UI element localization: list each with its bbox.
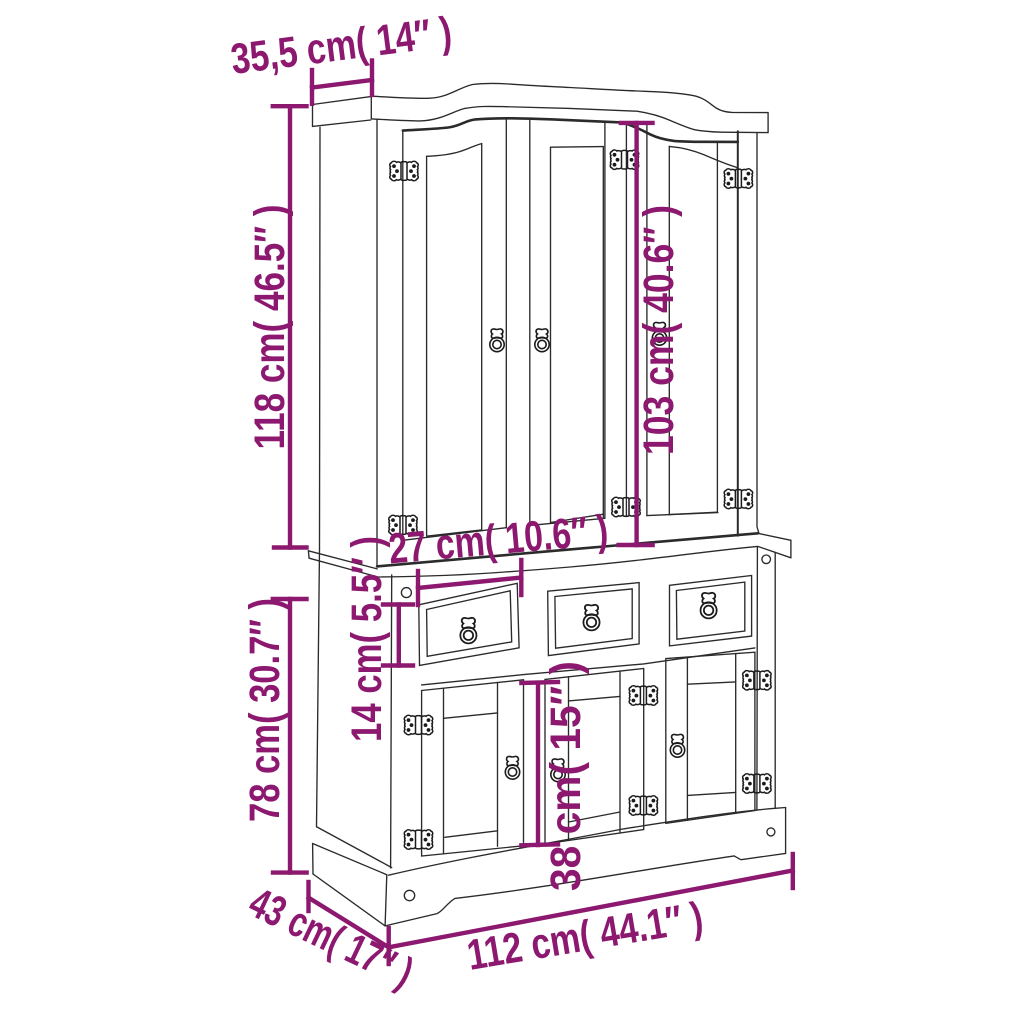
svg-text:14 cm( 5.5″ ): 14 cm( 5.5″ ) xyxy=(343,536,391,742)
svg-text:112 cm( 44.1″ ): 112 cm( 44.1″ ) xyxy=(464,893,707,980)
svg-text:43 cm( 17″ ): 43 cm( 17″ ) xyxy=(242,879,421,998)
svg-text:103 cm( 40.6″ ): 103 cm( 40.6″ ) xyxy=(635,205,683,455)
svg-text:38 cm( 15″ ): 38 cm( 15″ ) xyxy=(542,661,590,891)
svg-text:35,5 cm( 14″ ): 35,5 cm( 14″ ) xyxy=(228,8,454,84)
svg-text:78 cm( 30.7″ ): 78 cm( 30.7″ ) xyxy=(241,598,289,822)
svg-text:27 cm( 10.6″ ): 27 cm( 10.6″ ) xyxy=(387,506,610,573)
svg-text:118 cm( 46.5″ ): 118 cm( 46.5″ ) xyxy=(246,205,294,450)
